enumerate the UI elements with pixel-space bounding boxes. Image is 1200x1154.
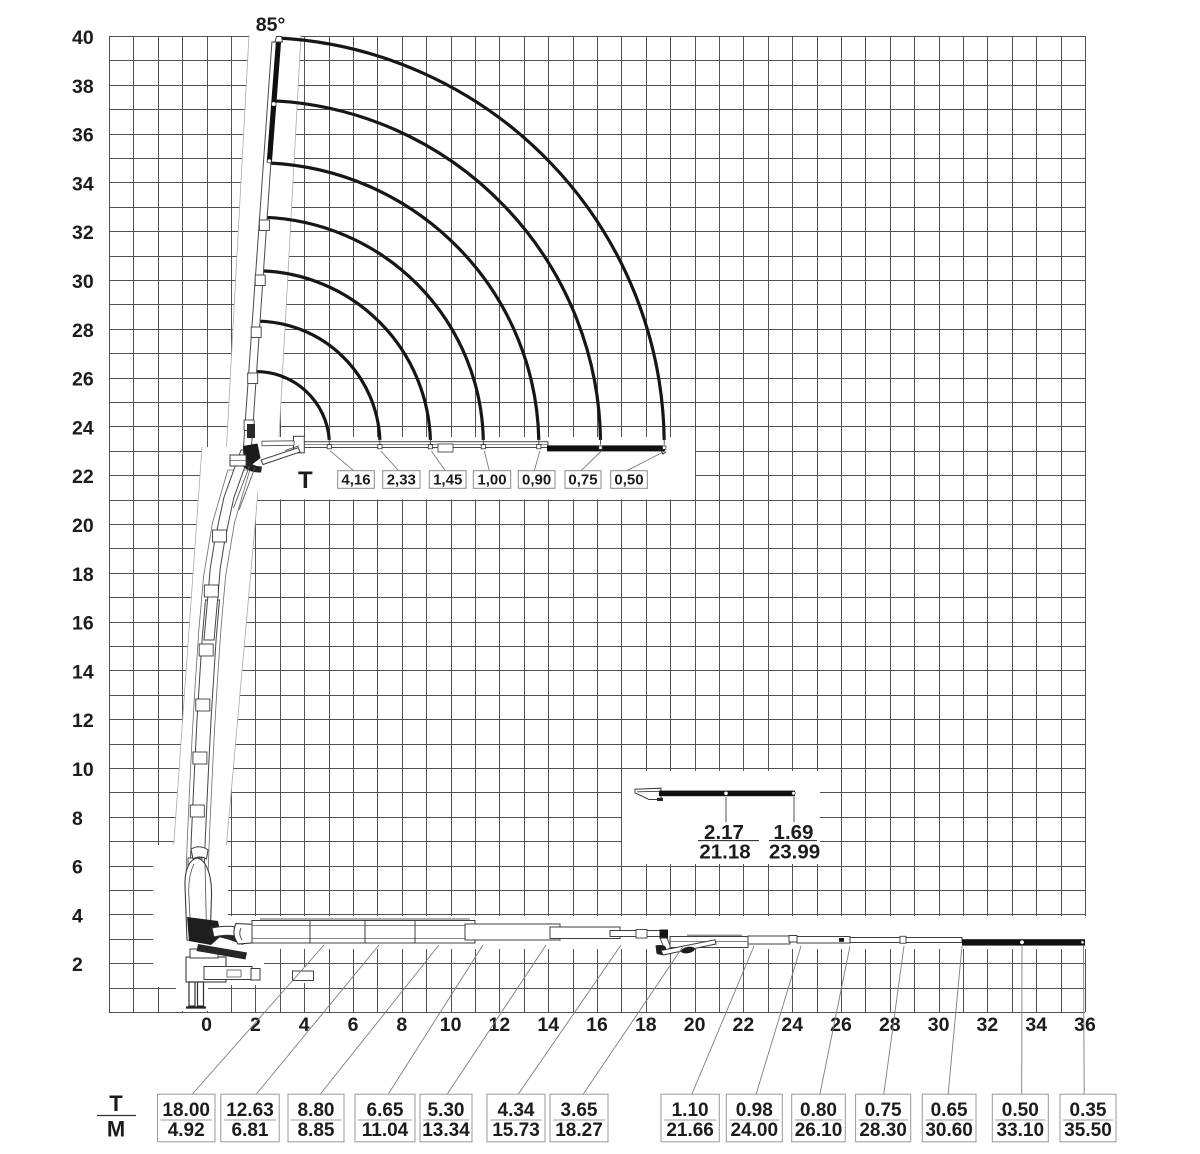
svg-text:2: 2 (72, 954, 83, 976)
svg-text:16: 16 (72, 613, 94, 635)
svg-text:30: 30 (72, 271, 94, 293)
svg-text:12.63: 12.63 (226, 1100, 274, 1121)
svg-text:34: 34 (1025, 1014, 1047, 1036)
svg-text:6: 6 (348, 1014, 359, 1036)
svg-text:22: 22 (733, 1014, 755, 1036)
svg-text:14: 14 (537, 1014, 559, 1036)
svg-text:40: 40 (72, 27, 94, 49)
svg-text:2,33: 2,33 (387, 471, 416, 488)
svg-text:10: 10 (72, 759, 94, 781)
svg-text:6.81: 6.81 (232, 1120, 269, 1141)
svg-text:12: 12 (72, 710, 94, 732)
svg-text:26: 26 (72, 369, 94, 391)
svg-text:30: 30 (928, 1014, 950, 1036)
svg-text:22: 22 (72, 466, 94, 488)
svg-text:T: T (109, 1091, 123, 1116)
svg-text:30.60: 30.60 (925, 1120, 973, 1141)
svg-text:11.04: 11.04 (362, 1120, 409, 1141)
svg-text:5.30: 5.30 (428, 1100, 465, 1121)
svg-text:6.65: 6.65 (367, 1100, 404, 1121)
svg-text:28: 28 (72, 320, 94, 342)
svg-text:13.34: 13.34 (422, 1120, 470, 1141)
svg-text:4,16: 4,16 (341, 471, 370, 488)
svg-text:38: 38 (72, 76, 94, 98)
svg-text:8: 8 (396, 1014, 407, 1036)
svg-text:26: 26 (830, 1014, 852, 1036)
svg-text:0,50: 0,50 (614, 471, 643, 488)
svg-text:18: 18 (72, 564, 94, 586)
svg-text:0.35: 0.35 (1070, 1100, 1107, 1121)
svg-text:23.99: 23.99 (769, 841, 820, 864)
svg-text:24: 24 (781, 1014, 803, 1036)
svg-text:24.00: 24.00 (731, 1120, 779, 1141)
svg-text:0: 0 (201, 1014, 212, 1036)
svg-text:M: M (107, 1117, 125, 1142)
svg-text:35.50: 35.50 (1064, 1120, 1112, 1141)
svg-text:1.10: 1.10 (672, 1100, 709, 1121)
svg-text:0.75: 0.75 (865, 1100, 902, 1121)
svg-text:4: 4 (299, 1014, 310, 1036)
svg-text:0.65: 0.65 (931, 1100, 968, 1121)
svg-text:4.34: 4.34 (498, 1100, 535, 1121)
svg-text:15.73: 15.73 (492, 1120, 540, 1141)
svg-text:18: 18 (635, 1014, 657, 1036)
svg-text:1,00: 1,00 (477, 471, 506, 488)
svg-text:20: 20 (72, 515, 94, 537)
svg-text:4.92: 4.92 (168, 1120, 205, 1141)
svg-text:10: 10 (440, 1014, 462, 1036)
svg-text:0.98: 0.98 (736, 1100, 773, 1121)
svg-text:T: T (298, 467, 313, 494)
svg-text:0.80: 0.80 (800, 1100, 837, 1121)
svg-text:4: 4 (72, 905, 83, 927)
svg-text:34: 34 (72, 173, 94, 195)
svg-text:2: 2 (250, 1014, 261, 1036)
svg-text:24: 24 (72, 417, 94, 439)
svg-text:14: 14 (72, 661, 94, 683)
svg-text:26.10: 26.10 (795, 1120, 843, 1141)
svg-text:21.66: 21.66 (666, 1120, 714, 1141)
svg-text:18.27: 18.27 (555, 1120, 603, 1141)
svg-text:18.00: 18.00 (162, 1100, 210, 1121)
svg-text:33.10: 33.10 (997, 1120, 1045, 1141)
svg-text:0,75: 0,75 (568, 471, 597, 488)
svg-text:85°: 85° (256, 14, 286, 36)
svg-text:3.65: 3.65 (561, 1100, 598, 1121)
svg-text:1,45: 1,45 (433, 471, 462, 488)
svg-text:8.85: 8.85 (298, 1120, 335, 1141)
svg-text:0,90: 0,90 (522, 471, 551, 488)
svg-text:36: 36 (1074, 1014, 1096, 1036)
svg-text:28.30: 28.30 (859, 1120, 907, 1141)
svg-text:32: 32 (977, 1014, 999, 1036)
svg-text:36: 36 (72, 125, 94, 147)
svg-text:6: 6 (72, 857, 83, 879)
svg-text:8: 8 (72, 808, 83, 830)
svg-text:21.18: 21.18 (699, 841, 750, 864)
svg-text:12: 12 (489, 1014, 511, 1036)
svg-text:28: 28 (879, 1014, 901, 1036)
svg-text:8.80: 8.80 (298, 1100, 335, 1121)
svg-text:0.50: 0.50 (1002, 1100, 1039, 1121)
svg-text:16: 16 (586, 1014, 608, 1036)
svg-text:32: 32 (72, 222, 94, 244)
svg-text:20: 20 (684, 1014, 706, 1036)
